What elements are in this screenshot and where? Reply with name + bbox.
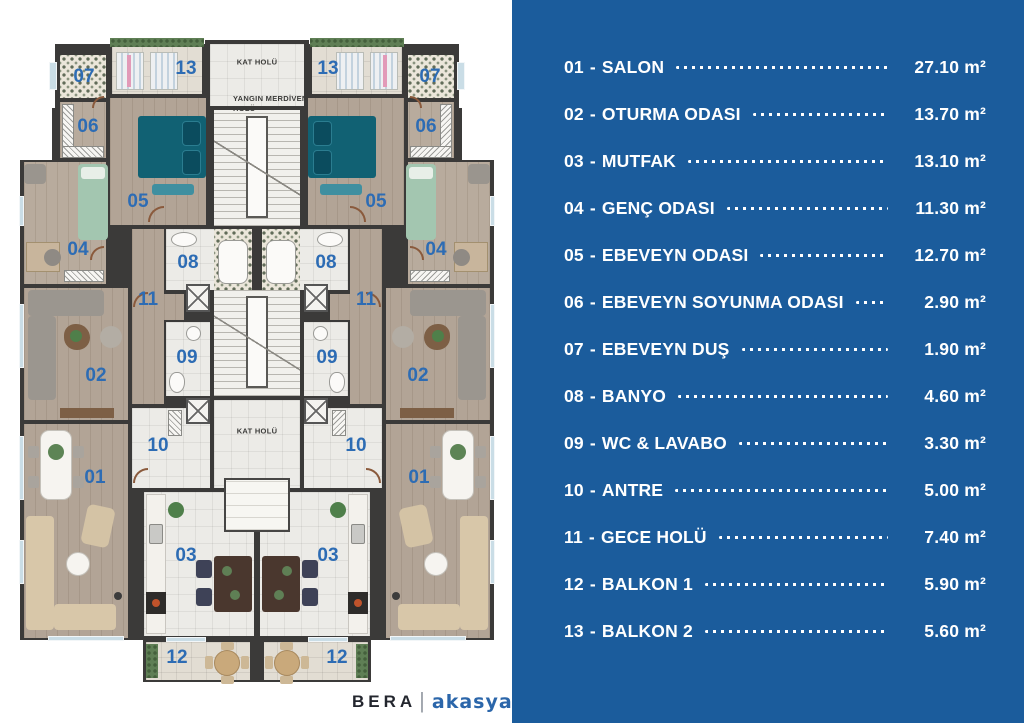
room-gece-holu [132, 229, 164, 404]
dotted-leader [753, 113, 888, 116]
chair [196, 560, 212, 578]
legend-item-balkon-1: 12 - BALKON 1 5.90 m² [564, 561, 986, 608]
room-number-01-right: 01 [408, 467, 429, 489]
dotted-leader [719, 536, 888, 539]
legend-separator: - [589, 527, 595, 548]
duct-shaft [186, 284, 210, 312]
legend-area: 1.90 m² [900, 339, 986, 360]
lounger-towel [127, 55, 131, 87]
legend-item-ebeveyn-dus: 07 - EBEVEYN DUŞ 1.90 m² [564, 326, 986, 373]
room-number-09-left: 09 [176, 347, 197, 369]
dotted-leader [705, 583, 888, 586]
chair [302, 588, 318, 606]
kat-holu-mid-floor [214, 400, 300, 488]
wardrobe [410, 146, 452, 158]
legend-item-wc-lavabo: 09 - WC & LAVABO 3.30 m² [564, 420, 986, 467]
gece-holu-branch [330, 294, 350, 320]
legend-item-ebeveyn-soyunma: 06 - EBEVEYN SOYUNMA ODASI 2.90 m² [564, 279, 986, 326]
toilet [169, 372, 185, 393]
room-number-13-right: 13 [317, 58, 338, 80]
pillow [409, 167, 433, 179]
window [490, 540, 495, 584]
lounger-towel [383, 55, 387, 87]
legend-separator: - [590, 198, 596, 219]
legend-name: BALKON 1 [602, 574, 693, 595]
legend-area: 7.40 m² [900, 527, 986, 548]
room-number-09-right: 09 [316, 347, 337, 369]
sink [313, 326, 328, 341]
floor-lamp [392, 592, 400, 600]
yangin-merdiven-label-line2: HOLÜ [233, 104, 255, 113]
room-number-04-right: 04 [425, 239, 446, 261]
armchair [24, 164, 46, 184]
legend-item-antre: 10 - ANTRE 5.00 m² [564, 467, 986, 514]
room-number-11-left: 11 [138, 289, 158, 311]
balcony-chair [241, 656, 249, 669]
window [19, 196, 24, 226]
legend-item-genc-odasi: 04 - GENÇ ODASI 11.30 m² [564, 185, 986, 232]
yangin-merdiven-label-line1: YANGIN MERDİVEN [233, 94, 308, 103]
sofa [54, 604, 116, 630]
dotted-leader [678, 395, 888, 398]
corner-sofa [28, 316, 56, 400]
planter-strip [110, 38, 204, 47]
wardrobe [440, 104, 452, 152]
legend-num: 09 [564, 433, 584, 454]
legend-area: 2.90 m² [900, 292, 986, 313]
toilet [329, 372, 345, 393]
legend-separator: - [590, 339, 596, 360]
pillow [313, 150, 332, 175]
kitchen-sink [351, 524, 365, 544]
balcony-door-glass [166, 637, 206, 642]
sofa [460, 516, 488, 630]
pillow [81, 167, 105, 179]
plant [48, 444, 64, 460]
balcony-chair [221, 676, 234, 684]
sofa [398, 604, 460, 630]
window [457, 62, 465, 90]
kat-holu-mid-label: KAT HOLÜ [237, 427, 278, 436]
dining-chair [73, 476, 84, 488]
legend-num: 08 [564, 386, 584, 407]
corner-sofa [28, 290, 104, 316]
pillow [313, 121, 332, 146]
window [490, 196, 495, 226]
legend-num: 11 [564, 527, 583, 548]
legend-area: 3.30 m² [900, 433, 986, 454]
dotted-leader [739, 442, 888, 445]
planter [146, 644, 158, 678]
duct-shaft [304, 398, 328, 424]
legend-item-banyo: 08 - BANYO 4.60 m² [564, 373, 986, 420]
room-number-03-left: 03 [175, 545, 196, 567]
room-number-11-right: 11 [356, 289, 376, 311]
floor-lamp [114, 592, 122, 600]
legend-name: SALON [602, 57, 664, 78]
window [390, 636, 466, 641]
room-number-04-left: 04 [67, 239, 88, 261]
legend-separator: - [590, 480, 596, 501]
legend-name: MUTFAK [602, 151, 676, 172]
legend-area: 13.10 m² [900, 151, 986, 172]
legend-separator: - [590, 386, 596, 407]
legend-area: 27.10 m² [900, 57, 986, 78]
kitchen-table [262, 556, 300, 612]
legend-list: 01 - SALON 27.10 m² 02 - OTURMA ODASI 13… [564, 44, 986, 655]
window [490, 304, 495, 368]
room-number-10-left: 10 [147, 435, 168, 457]
dotted-leader [760, 254, 888, 257]
pillow [182, 121, 201, 146]
legend-area: 12.70 m² [900, 245, 986, 266]
stove-burner [152, 599, 160, 607]
balcony-chair [280, 676, 293, 684]
legend-name: BALKON 2 [602, 621, 693, 642]
legend-separator: - [590, 574, 596, 595]
stove-burner [354, 599, 362, 607]
corner-sofa [410, 290, 486, 316]
fire-stair [214, 110, 300, 226]
poster: 01 01 02 02 03 03 04 04 05 05 06 06 07 0… [0, 0, 1024, 723]
desk-chair [44, 249, 61, 266]
legend-separator: - [590, 621, 596, 642]
legend-area: 5.00 m² [900, 480, 986, 501]
table-plant [222, 566, 232, 576]
window [490, 436, 495, 500]
legend-num: 02 [564, 104, 584, 125]
dining-table [40, 430, 72, 500]
room-number-05-left: 05 [127, 191, 148, 213]
armchair [468, 164, 490, 184]
sideboard [60, 408, 114, 418]
sink [186, 326, 201, 341]
dining-chair [73, 446, 84, 458]
legend-num: 05 [564, 245, 584, 266]
table-plant [282, 566, 292, 576]
legend-item-oturma-odasi: 02 - OTURMA ODASI 13.70 m² [564, 91, 986, 138]
legend-separator: - [590, 245, 596, 266]
window [19, 436, 24, 500]
duct-shaft [304, 284, 328, 312]
dotted-leader [742, 348, 888, 351]
elevator [224, 478, 290, 532]
room-number-08-right: 08 [315, 252, 336, 274]
chair [302, 560, 318, 578]
legend-num: 03 [564, 151, 584, 172]
balcony-chair [221, 642, 234, 650]
room-number-02-left: 02 [85, 365, 106, 387]
dining-chair [430, 476, 441, 488]
room-number-12-left: 12 [166, 647, 187, 669]
kat-holu-top-label: KAT HOLÜ [237, 58, 278, 67]
dining-chair [475, 476, 486, 488]
gece-holu-branch [164, 294, 184, 320]
legend-name: WC & LAVABO [602, 433, 727, 454]
legend-num: 12 [564, 574, 584, 595]
legend-separator: - [590, 57, 596, 78]
room-number-02-right: 02 [407, 365, 428, 387]
legend-area: 5.60 m² [900, 621, 986, 642]
brand-bera: BERA [352, 692, 416, 712]
coffee-table [66, 552, 90, 576]
legend-num: 04 [564, 198, 584, 219]
room-number-12-right: 12 [326, 647, 347, 669]
legend-name: EBEVEYN SOYUNMA ODASI [602, 292, 844, 313]
wardrobe [62, 104, 74, 152]
window [48, 636, 124, 641]
chair [196, 588, 212, 606]
sink [317, 232, 343, 247]
pillow [182, 150, 201, 175]
bed-bench [320, 184, 362, 195]
room-number-08-left: 08 [177, 252, 198, 274]
shower-tray [218, 240, 248, 284]
legend-name: GENÇ ODASI [602, 198, 715, 219]
dotted-leader [727, 207, 888, 210]
legend-item-gece-holu: 11 - GECE HOLÜ 7.40 m² [564, 514, 986, 561]
entry-closet [332, 410, 346, 436]
balcony-chair [205, 656, 213, 669]
legend-name: BANYO [602, 386, 666, 407]
room-number-06-right: 06 [415, 116, 436, 138]
legend-area: 5.90 m² [900, 574, 986, 595]
room-number-01-left: 01 [84, 467, 105, 489]
legend-num: 13 [564, 621, 584, 642]
legend-name: GECE HOLÜ [601, 527, 707, 548]
legend-num: 06 [564, 292, 584, 313]
window [19, 540, 24, 584]
wardrobe [64, 270, 104, 282]
dining-chair [28, 476, 39, 488]
balcony-chair [301, 656, 309, 669]
legend-separator: - [590, 433, 596, 454]
table-plant [230, 590, 240, 600]
dotted-leader [856, 301, 888, 304]
armchair [100, 326, 122, 348]
window [19, 304, 24, 368]
balcony-chair [280, 642, 293, 650]
legend-item-mutfak: 03 - MUTFAK 13.10 m² [564, 138, 986, 185]
dotted-leader [675, 489, 888, 492]
legend-separator: - [590, 151, 596, 172]
sideboard [400, 408, 454, 418]
legend-panel: 01 - SALON 27.10 m² 02 - OTURMA ODASI 13… [512, 0, 1024, 723]
legend-area: 13.70 m² [900, 104, 986, 125]
window [49, 62, 57, 90]
legend-name: EBEVEYN ODASI [602, 245, 749, 266]
room-number-07-right: 07 [419, 66, 440, 88]
coffee-table [424, 552, 448, 576]
shower-tray [266, 240, 296, 284]
corner-sofa [458, 316, 486, 400]
brand-logo: BERA | akasya [352, 686, 513, 718]
legend-item-balkon-2: 13 - BALKON 2 5.60 m² [564, 608, 986, 655]
room-number-07-left: 07 [73, 66, 94, 88]
armchair [392, 326, 414, 348]
legend-item-salon: 01 - SALON 27.10 m² [564, 44, 986, 91]
dotted-leader [705, 630, 888, 633]
room-gece-holu [350, 229, 382, 404]
room-number-10-right: 10 [345, 435, 366, 457]
floor-plan: 01 01 02 02 03 03 04 04 05 05 06 06 07 0… [0, 0, 512, 723]
balcony-chair [265, 656, 273, 669]
sun-lounger [336, 52, 364, 90]
legend-num: 01 [564, 57, 584, 78]
legend-area: 4.60 m² [900, 386, 986, 407]
plant [330, 502, 346, 518]
table-plant [274, 590, 284, 600]
legend-num: 07 [564, 339, 584, 360]
room-number-03-right: 03 [317, 545, 338, 567]
balcony-door-glass [308, 637, 348, 642]
sun-lounger [150, 52, 178, 90]
legend-area: 11.30 m² [900, 198, 986, 219]
legend-name: OTURMA ODASI [602, 104, 741, 125]
main-stair [214, 290, 300, 396]
legend-name: ANTRE [602, 480, 663, 501]
legend-num: 10 [564, 480, 584, 501]
brand-akasya: akasya [432, 691, 513, 713]
dotted-leader [676, 66, 888, 69]
room-number-06-left: 06 [77, 116, 98, 138]
dotted-leader [688, 160, 888, 163]
entry-closet [168, 410, 182, 436]
dining-chair [430, 446, 441, 458]
wardrobe [62, 146, 104, 158]
dining-chair [475, 446, 486, 458]
balcony-table [274, 650, 300, 676]
planter-strip [310, 38, 404, 47]
room-number-05-right: 05 [365, 191, 386, 213]
planter [356, 644, 368, 678]
stair-diagonal [214, 290, 300, 396]
kitchen-table [214, 556, 252, 612]
duct-shaft [186, 398, 210, 424]
plant [432, 330, 444, 342]
plant [168, 502, 184, 518]
sink [171, 232, 197, 247]
plant [70, 330, 82, 342]
legend-separator: - [590, 104, 596, 125]
dining-table [442, 430, 474, 500]
sofa [26, 516, 54, 630]
brand-divider: | [419, 688, 425, 714]
room-number-13-left: 13 [175, 58, 196, 80]
bed-bench [152, 184, 194, 195]
dining-chair [28, 446, 39, 458]
legend-item-ebeveyn-odasi: 05 - EBEVEYN ODASI 12.70 m² [564, 232, 986, 279]
legend-name: EBEVEYN DUŞ [602, 339, 730, 360]
kitchen-sink [149, 524, 163, 544]
stair-diagonal [214, 110, 300, 226]
desk-chair [453, 249, 470, 266]
balcony-table [214, 650, 240, 676]
plant [450, 444, 466, 460]
legend-separator: - [590, 292, 596, 313]
wardrobe [410, 270, 450, 282]
